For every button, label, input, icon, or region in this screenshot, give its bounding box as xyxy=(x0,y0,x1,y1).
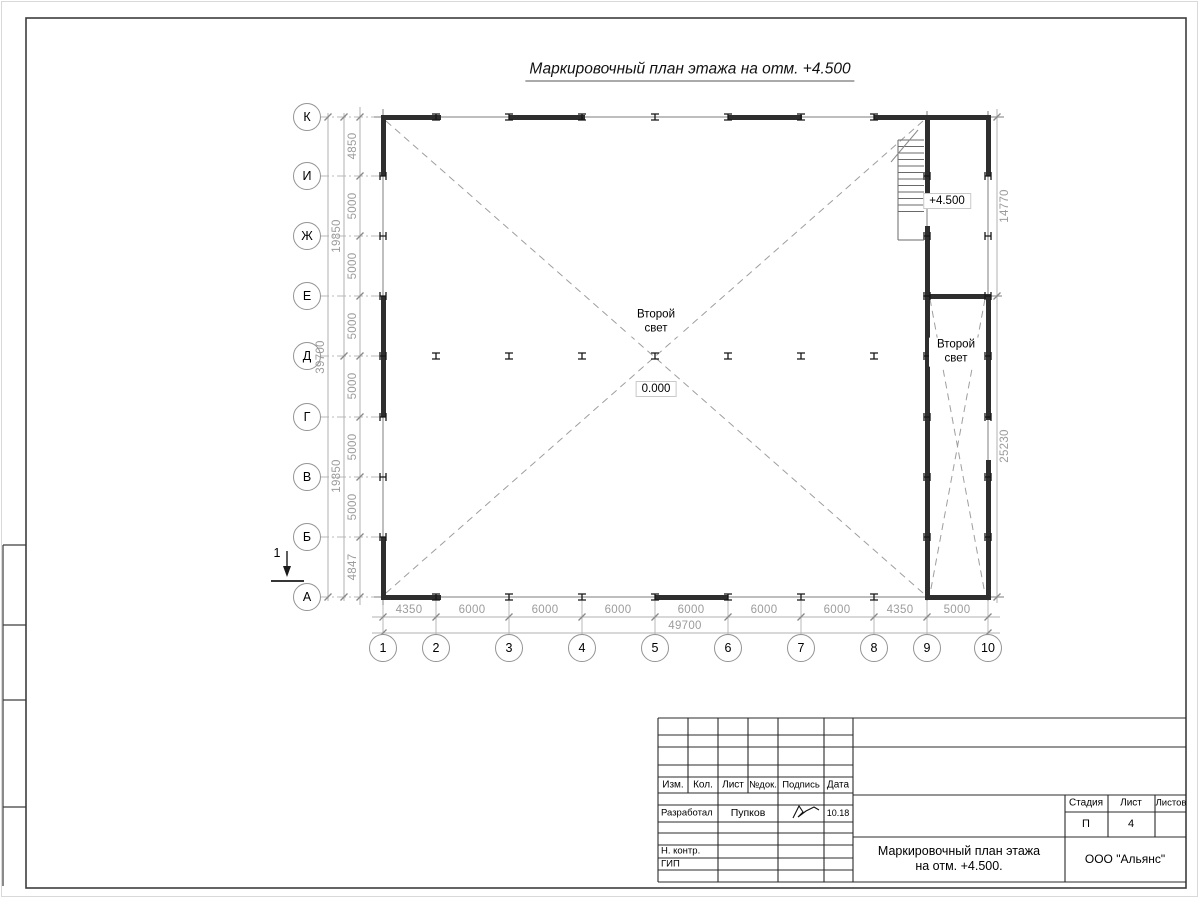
tb-col-podpis: Подпись xyxy=(782,780,820,791)
tb-role-ncontrol: Н. контр. xyxy=(661,846,700,857)
tb-sheet-label: Лист xyxy=(1120,798,1142,809)
axis-col-0: 1 xyxy=(369,634,397,662)
axis-col-7: 8 xyxy=(860,634,888,662)
tb-sheets-label: Листов xyxy=(1156,798,1187,809)
axis-row-6: В xyxy=(293,463,321,491)
axis-col-label: 3 xyxy=(506,641,513,655)
drawing-sheet: Маркировочный план этажа на отм. +4.500 … xyxy=(0,0,1200,900)
axis-row-8: А xyxy=(293,583,321,611)
dim-bottom-step-7: 4350 xyxy=(887,604,914,616)
axis-row-label: А xyxy=(303,590,311,604)
dim-left-step-0: 4850 xyxy=(347,133,359,160)
dim-bottom-total: 49700 xyxy=(668,620,701,632)
tb-stage-label: Стадия xyxy=(1069,798,1103,809)
tb-stage-value: П xyxy=(1082,818,1090,830)
axis-row-2: Ж xyxy=(293,222,321,250)
axis-col-label: 7 xyxy=(798,641,805,655)
dim-bottom-step-0: 4350 xyxy=(396,604,423,616)
axis-col-5: 6 xyxy=(714,634,742,662)
dim-left-mid-1: 19850 xyxy=(331,459,343,492)
tb-col-ndok: №док. xyxy=(749,780,777,791)
sheet-frame xyxy=(26,18,1186,888)
tb-role-gip: ГИП xyxy=(661,859,680,870)
axis-col-label: 9 xyxy=(924,641,931,655)
tb-col-izm: Изм. xyxy=(662,780,683,791)
tb-col-data: Дата xyxy=(827,780,849,791)
dim-left-step-5: 5000 xyxy=(347,434,359,461)
void-diagonals xyxy=(386,121,985,594)
tb-doc-title-line1: Маркировочный план этажа xyxy=(878,844,1040,858)
axis-col-label: 10 xyxy=(981,641,995,655)
walls xyxy=(381,115,991,600)
dim-bottom-step-5: 6000 xyxy=(751,604,778,616)
column-marks xyxy=(380,114,991,600)
dim-right-upper: 14770 xyxy=(999,189,1011,222)
axis-row-label: К xyxy=(303,110,310,124)
tb-company: ООО "Альянс" xyxy=(1085,852,1165,866)
axis-row-label: В xyxy=(303,470,311,484)
second-light-hall-label: Второй свет xyxy=(629,308,683,337)
page-edge xyxy=(2,2,1198,897)
level-plus-mark: +4.500 xyxy=(923,193,971,209)
dim-bottom-step-8: 5000 xyxy=(944,604,971,616)
axis-col-label: 5 xyxy=(652,641,659,655)
signature-scribble xyxy=(793,806,819,818)
axis-col-label: 1 xyxy=(380,641,387,655)
dim-bottom-step-4: 6000 xyxy=(678,604,705,616)
dim-left-total: 39700 xyxy=(315,340,327,373)
dim-left-step-7: 4847 xyxy=(347,554,359,581)
axis-col-4: 5 xyxy=(641,634,669,662)
dim-bottom-step-3: 6000 xyxy=(605,604,632,616)
dim-left-step-4: 5000 xyxy=(347,373,359,400)
staircase xyxy=(891,130,924,240)
tb-name-developed: Пупков xyxy=(731,807,766,819)
axis-col-label: 4 xyxy=(579,641,586,655)
axis-leaders-left xyxy=(320,117,381,597)
axis-col-2: 3 xyxy=(495,634,523,662)
axis-col-6: 7 xyxy=(787,634,815,662)
tb-col-list: Лист xyxy=(722,780,744,791)
level-zero-mark: 0.000 xyxy=(636,381,677,397)
dim-left-step-3: 5000 xyxy=(347,313,359,340)
axis-row-3: Е xyxy=(293,282,321,310)
axis-row-label: Д xyxy=(303,349,311,363)
axis-col-9: 10 xyxy=(974,634,1002,662)
axis-row-label: Е xyxy=(303,289,311,303)
axis-row-label: Ж xyxy=(301,229,313,243)
tb-col-kol: Кол. xyxy=(693,780,713,791)
dim-left-mid-0: 19850 xyxy=(331,219,343,252)
axis-row-label: Г xyxy=(304,410,311,424)
dim-bottom-step-6: 6000 xyxy=(824,604,851,616)
tb-date-developed: 10.18 xyxy=(827,808,850,818)
dim-left-step-1: 5000 xyxy=(347,193,359,220)
dim-bottom-step-1: 6000 xyxy=(459,604,486,616)
tb-role-developed: Разработал xyxy=(661,808,713,819)
axis-row-label: И xyxy=(303,169,312,183)
dim-right-lower: 25230 xyxy=(999,429,1011,462)
tb-sheet-value: 4 xyxy=(1128,818,1134,830)
axis-col-3: 4 xyxy=(568,634,596,662)
dim-left-step-2: 5000 xyxy=(347,253,359,280)
axis-row-0: К xyxy=(293,103,321,131)
left-margin-stamp xyxy=(3,545,26,886)
second-light-strip-label: Второй свет xyxy=(929,338,983,367)
axis-row-1: И xyxy=(293,162,321,190)
axis-row-5: Г xyxy=(293,403,321,431)
section-mark-label: 1 xyxy=(274,546,281,560)
axis-col-label: 8 xyxy=(871,641,878,655)
axis-row-7: Б xyxy=(293,523,321,551)
wall-axis-lines xyxy=(374,109,1004,605)
axis-col-label: 2 xyxy=(433,641,440,655)
axis-col-label: 6 xyxy=(725,641,732,655)
page-title: Маркировочный план этажа на отм. +4.500 xyxy=(525,61,854,82)
axis-row-label: Б xyxy=(303,530,311,544)
tb-doc-title-line2: на отм. +4.500. xyxy=(915,859,1002,873)
dim-left-step-6: 5000 xyxy=(347,494,359,521)
axis-col-8: 9 xyxy=(913,634,941,662)
axis-col-1: 2 xyxy=(422,634,450,662)
dim-bottom-step-2: 6000 xyxy=(532,604,559,616)
drawing-linework xyxy=(0,0,1200,900)
